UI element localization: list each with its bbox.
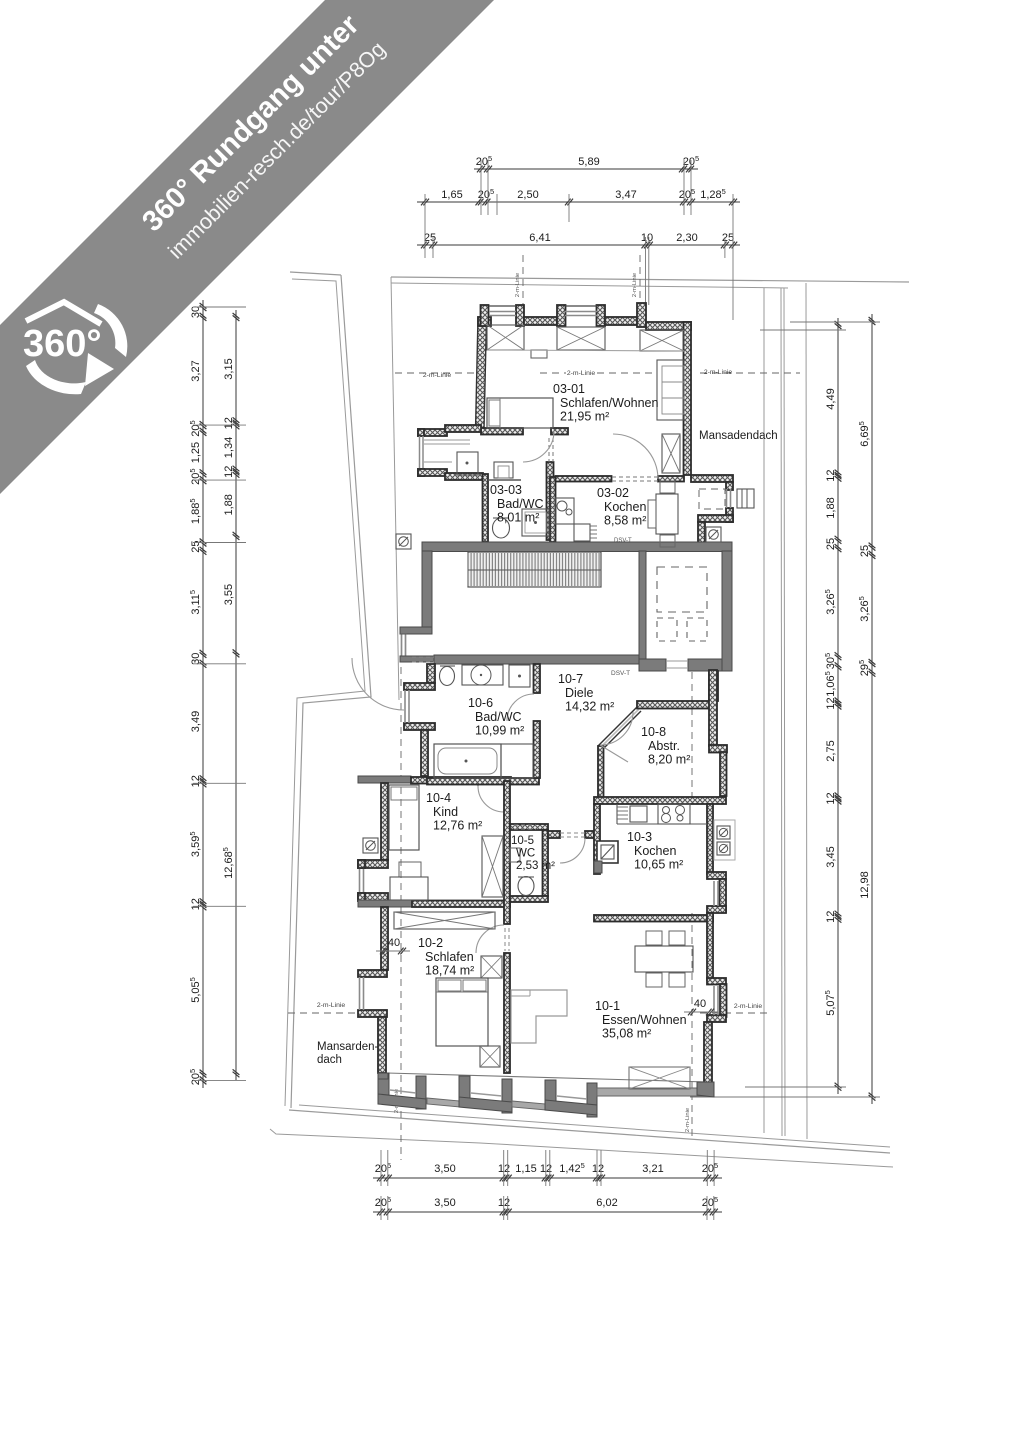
svg-text:DSV-T: DSV-T [614, 538, 632, 544]
svg-text:1,15: 1,15 [515, 1163, 536, 1175]
svg-text:03-02: 03-02 [597, 486, 629, 500]
svg-text:12: 12 [190, 898, 202, 910]
svg-text:1,65: 1,65 [441, 189, 462, 201]
svg-text:18,74 m²: 18,74 m² [425, 964, 474, 978]
svg-text:10-6: 10-6 [468, 696, 493, 710]
svg-text:2-m-Linie: 2-m-Linie [317, 1002, 346, 1009]
svg-text:10-8: 10-8 [641, 725, 666, 739]
svg-text:25: 25 [859, 545, 871, 557]
svg-text:dach: dach [317, 1054, 342, 1066]
svg-text:3,50: 3,50 [434, 1197, 455, 1209]
svg-text:Essen/Wohnen: Essen/Wohnen [602, 1013, 687, 1027]
svg-text:2,53 m²: 2,53 m² [516, 860, 555, 872]
svg-text:1,25: 1,25 [190, 442, 202, 463]
svg-text:10-3: 10-3 [627, 830, 652, 844]
svg-text:2-m-Linie: 2-m-Linie [734, 1003, 763, 1010]
svg-text:12: 12 [223, 466, 235, 478]
svg-text:Schlafen: Schlafen [425, 950, 474, 964]
svg-text:Mansarden-: Mansarden- [317, 1041, 379, 1053]
svg-text:10-5: 10-5 [511, 835, 534, 847]
svg-text:10,99 m²: 10,99 m² [475, 724, 524, 738]
svg-text:8,20 m²: 8,20 m² [648, 753, 690, 767]
svg-text:Bad/WC: Bad/WC [475, 710, 522, 724]
svg-text:4,49: 4,49 [825, 388, 837, 409]
svg-text:35,08 m²: 35,08 m² [602, 1027, 651, 1041]
svg-text:Kochen: Kochen [634, 844, 676, 858]
svg-text:12: 12 [825, 911, 837, 923]
svg-text:12: 12 [825, 697, 837, 709]
svg-text:3,21: 3,21 [642, 1163, 663, 1175]
svg-text:3,27: 3,27 [190, 360, 202, 381]
svg-text:3,49: 3,49 [190, 711, 202, 732]
svg-text:2-m-Linie: 2-m-Linie [704, 369, 733, 376]
svg-text:Kochen: Kochen [604, 500, 646, 514]
svg-text:14,32 m²: 14,32 m² [565, 700, 614, 714]
svg-text:03-03: 03-03 [490, 483, 522, 497]
svg-text:25: 25 [825, 538, 837, 550]
svg-text:30: 30 [190, 653, 202, 665]
svg-text:40: 40 [388, 937, 400, 949]
svg-text:Abstr.: Abstr. [648, 739, 680, 753]
svg-text:6,41: 6,41 [529, 232, 550, 244]
svg-text:2,30: 2,30 [676, 232, 697, 244]
svg-text:Bad/WC: Bad/WC [497, 497, 544, 511]
svg-text:Kind: Kind [433, 805, 458, 819]
svg-text:3,50: 3,50 [434, 1163, 455, 1175]
svg-text:8,01 m²: 8,01 m² [497, 511, 539, 525]
svg-text:Diele: Diele [565, 686, 594, 700]
svg-text:3,55: 3,55 [223, 584, 235, 605]
svg-text:40: 40 [694, 998, 706, 1010]
svg-text:03-01: 03-01 [553, 382, 585, 396]
svg-text:10-2: 10-2 [418, 936, 443, 950]
svg-text:Mansadendach: Mansadendach [699, 430, 778, 442]
svg-text:8,58 m²: 8,58 m² [604, 514, 646, 528]
svg-text:30: 30 [190, 306, 202, 318]
svg-text:DSV-T: DSV-T [611, 670, 630, 677]
svg-text:2-m-Linie: 2-m-Linie [567, 370, 596, 377]
svg-text:6,02: 6,02 [596, 1197, 617, 1209]
svg-text:2,75: 2,75 [825, 740, 837, 761]
svg-text:WC: WC [516, 848, 535, 860]
svg-text:12,685: 12,685 [221, 847, 235, 879]
svg-text:25: 25 [424, 232, 436, 244]
svg-text:3,15: 3,15 [223, 358, 235, 379]
svg-text:10-7: 10-7 [558, 672, 583, 686]
svg-text:3,45: 3,45 [825, 846, 837, 867]
svg-text:1,88: 1,88 [825, 497, 837, 518]
svg-text:12: 12 [592, 1163, 604, 1175]
svg-text:1,34: 1,34 [223, 437, 235, 458]
svg-text:1,88: 1,88 [223, 494, 235, 515]
svg-text:10,65 m²: 10,65 m² [634, 858, 683, 872]
svg-text:12: 12 [825, 469, 837, 481]
svg-text:12: 12 [825, 792, 837, 804]
svg-text:10: 10 [641, 232, 653, 244]
svg-text:2,50: 2,50 [517, 189, 538, 201]
svg-text:10-4: 10-4 [426, 791, 451, 805]
svg-text:2-m-Linie: 2-m-Linie [632, 273, 638, 297]
svg-text:2-m-Linie: 2-m-Linie [685, 1108, 691, 1132]
svg-text:12: 12 [190, 775, 202, 787]
svg-text:2-m-Linie: 2-m-Linie [515, 273, 521, 297]
svg-text:12,76 m²: 12,76 m² [433, 819, 482, 833]
svg-text:5,89: 5,89 [578, 156, 599, 168]
svg-text:21,95 m²: 21,95 m² [560, 410, 609, 424]
svg-text:25: 25 [722, 232, 734, 244]
svg-text:10-1: 10-1 [595, 999, 620, 1013]
svg-text:3,47: 3,47 [615, 189, 636, 201]
svg-text:12,98: 12,98 [859, 871, 871, 899]
svg-text:12: 12 [223, 417, 235, 429]
svg-text:Schlafen/Wohnen: Schlafen/Wohnen [560, 396, 658, 410]
svg-text:2-m-Linie: 2-m-Linie [423, 372, 452, 379]
